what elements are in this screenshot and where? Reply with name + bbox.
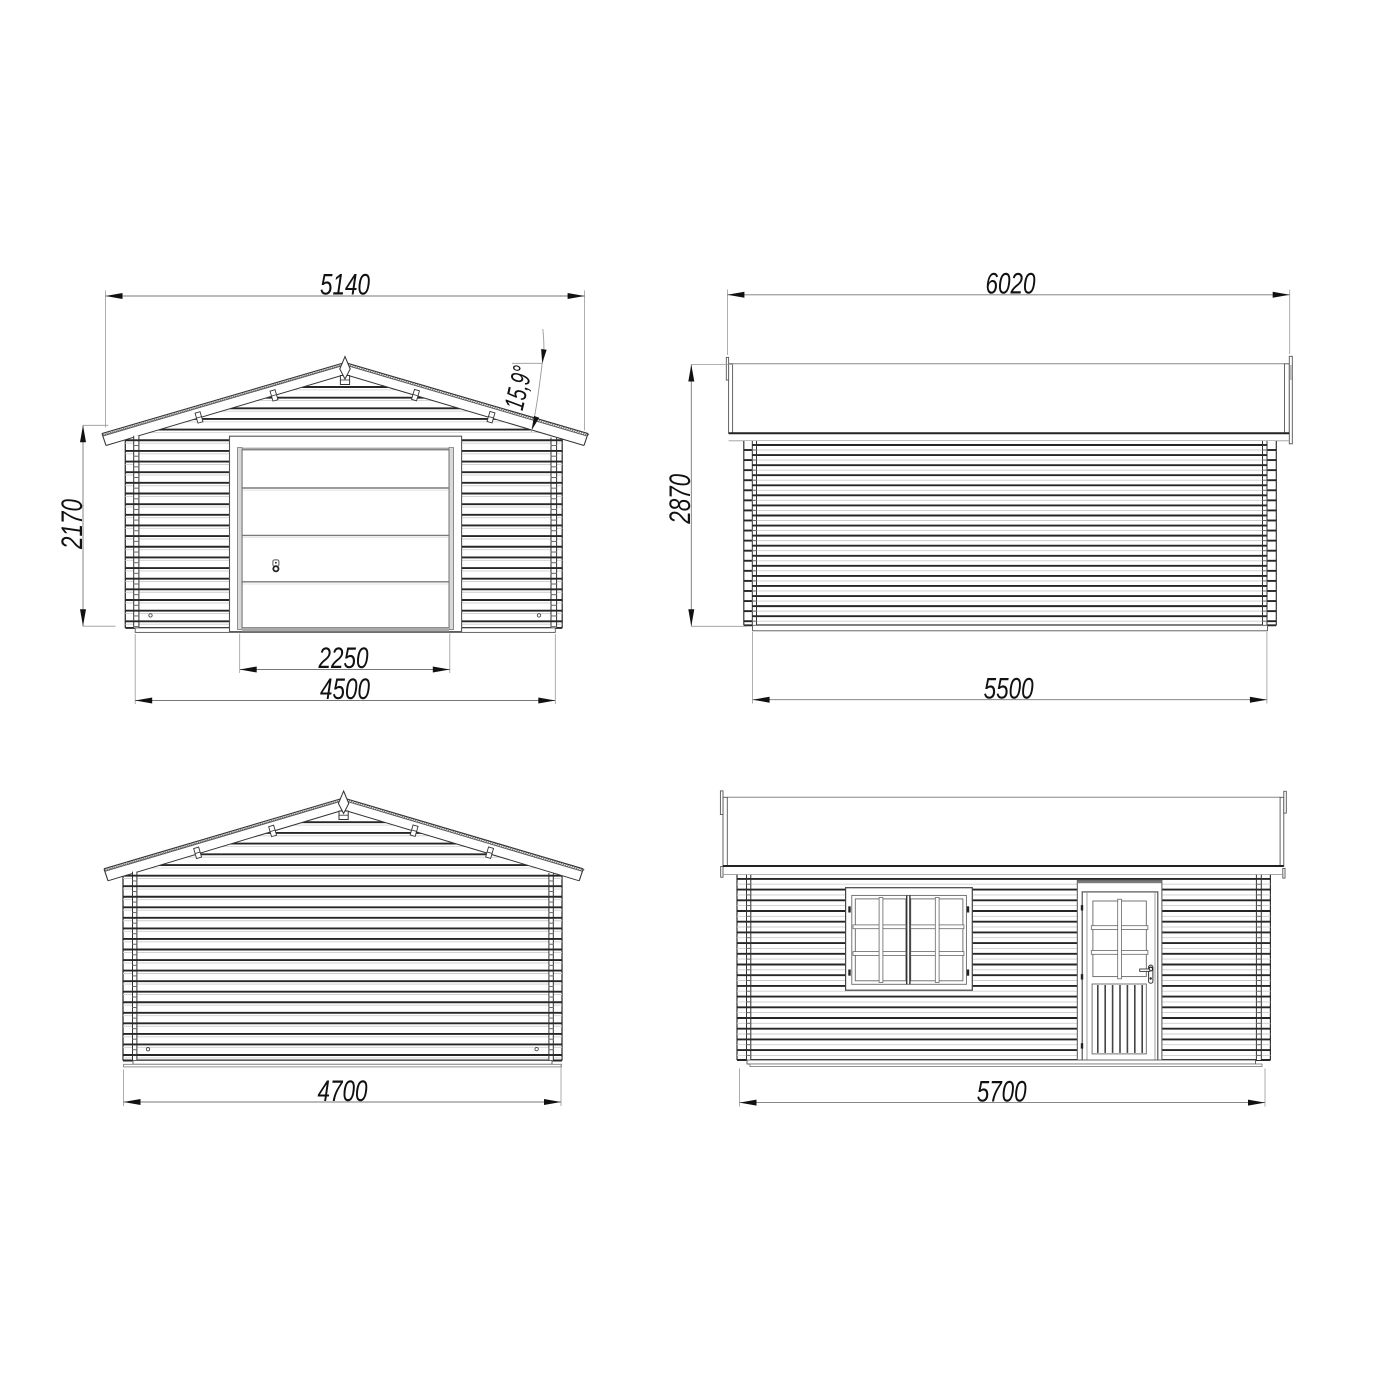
svg-text:2250: 2250	[318, 642, 369, 675]
svg-text:5140: 5140	[320, 269, 370, 302]
svg-text:4700: 4700	[318, 1075, 368, 1108]
svg-text:5500: 5500	[984, 673, 1034, 706]
svg-text:5700: 5700	[977, 1075, 1027, 1108]
svg-text:6020: 6020	[986, 268, 1036, 301]
svg-text:2170: 2170	[56, 499, 89, 550]
svg-text:4500: 4500	[320, 673, 370, 706]
svg-text:2870: 2870	[664, 474, 697, 525]
